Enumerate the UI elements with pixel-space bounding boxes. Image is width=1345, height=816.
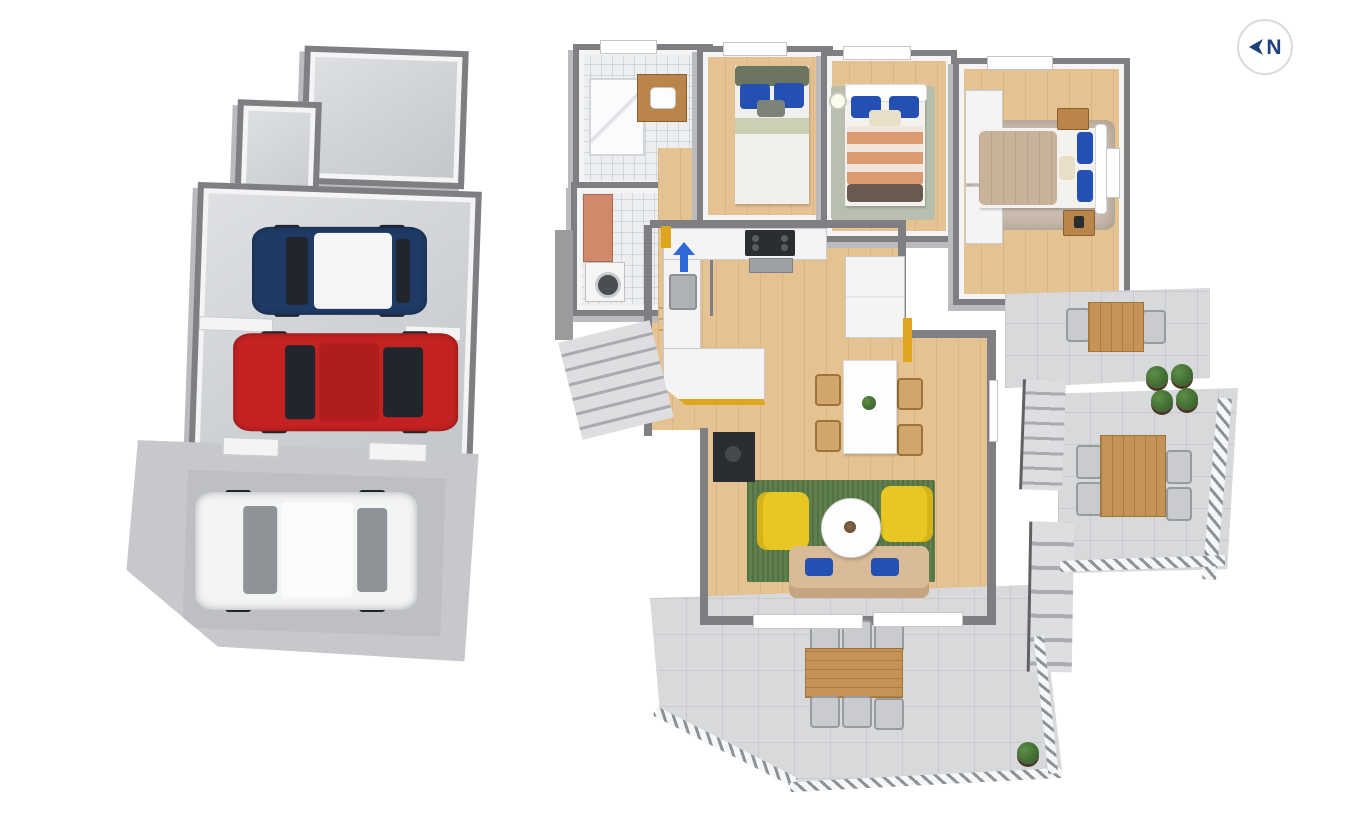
dining-chair: [815, 374, 841, 406]
potted-plant: [1171, 364, 1193, 386]
upper-terrace-table: [1088, 302, 1144, 352]
vehicle-white-sedan: [195, 492, 417, 610]
blanket-band: [735, 118, 809, 134]
master-bedroom: [953, 58, 1130, 305]
burner: [781, 244, 788, 251]
terrace-chair: [1066, 308, 1090, 342]
sofa-pillow-blue: [871, 558, 899, 576]
pillow-gray: [757, 100, 785, 117]
cabinet-accent: [661, 226, 671, 248]
burner: [752, 235, 759, 242]
cabinet-accent: [903, 318, 912, 362]
window: [723, 42, 787, 56]
entry-side-wall: [555, 230, 573, 340]
kitchen-peninsula: [663, 348, 765, 405]
table-plant: [862, 396, 876, 410]
car-roof: [319, 343, 379, 421]
rear-glass: [396, 239, 410, 303]
terrace-stairs-lower: [1027, 522, 1075, 673]
oven: [749, 258, 793, 273]
tall-cabinets: [845, 256, 905, 338]
window: [873, 612, 963, 627]
window: [989, 380, 998, 442]
washing-machine: [585, 262, 625, 302]
floor-lamp: [829, 92, 847, 110]
bedroom-2: [821, 50, 957, 242]
garage-door-pillar-right: [368, 442, 427, 462]
car-roof: [281, 502, 353, 598]
armchair-yellow: [757, 492, 809, 550]
pillow-beige: [869, 110, 901, 127]
laundry-counter: [583, 194, 613, 262]
pillow-blue: [1077, 132, 1093, 164]
bedroom-1: [697, 46, 833, 226]
dining-chair: [815, 420, 841, 452]
storage-room: [300, 46, 469, 190]
terrace-chair: [1076, 445, 1102, 479]
rear-glass: [383, 347, 423, 417]
blanket-tan: [979, 131, 1057, 205]
coffee-table: [821, 498, 881, 558]
foot-bench: [847, 184, 923, 202]
burner: [752, 244, 759, 251]
table-lamp: [1074, 216, 1084, 228]
terrace-chair: [1166, 487, 1192, 521]
potted-plant: [1176, 388, 1198, 410]
pillow-blue: [1077, 170, 1093, 202]
window: [1106, 148, 1120, 198]
kitchen-top-wall: [650, 220, 906, 228]
garage-door-pillar-left: [222, 437, 279, 457]
living-left-wall: [700, 428, 708, 624]
dining-top-wall: [898, 330, 994, 338]
house-floor-plan: [555, 30, 1315, 816]
armchair-yellow: [881, 486, 933, 542]
bed: [735, 66, 809, 204]
terrace-chair: [1142, 310, 1166, 344]
cooktop: [745, 230, 795, 256]
window: [753, 614, 863, 629]
patio-plant: [1017, 742, 1039, 764]
sink: [650, 87, 676, 109]
garage-building: [124, 38, 493, 662]
windshield: [286, 237, 308, 305]
garage-divider-wall-left: [199, 316, 273, 333]
windshield: [243, 506, 277, 594]
entrance-arrow-icon: [673, 242, 695, 272]
stove-pipe: [725, 446, 741, 462]
window: [600, 40, 657, 54]
sofa-pillow-blue: [805, 558, 833, 576]
blanket-salmon: [847, 126, 923, 184]
living-right-wall: [987, 330, 996, 625]
terrace-chair: [1076, 482, 1102, 516]
terrace-stairs-upper: [1019, 379, 1066, 490]
patio-table: [805, 648, 903, 698]
bed: [845, 84, 925, 206]
patio-chair: [810, 696, 840, 728]
dining-chair: [897, 378, 923, 410]
windshield: [285, 345, 315, 419]
potted-plant: [1146, 366, 1168, 388]
wood-stove: [713, 432, 755, 482]
washer-door: [595, 272, 621, 298]
vehicle-red-sedan: [233, 333, 458, 431]
dining-chair: [897, 424, 923, 456]
car-roof: [314, 233, 392, 309]
terrace-chair: [1166, 450, 1192, 484]
patio-chair: [874, 698, 904, 730]
pillow-beige: [1059, 156, 1075, 180]
bathroom-vanity: [637, 74, 687, 122]
nightstand: [1063, 210, 1095, 236]
table-decor: [844, 521, 856, 533]
patio-chair: [842, 696, 872, 728]
floor-plan-canvas: N: [0, 0, 1345, 816]
burner: [781, 235, 788, 242]
master-bed: [979, 128, 1101, 208]
window: [843, 46, 911, 60]
vehicle-blue-hatchback: [252, 227, 427, 315]
window: [987, 56, 1053, 70]
nightstand: [1057, 108, 1089, 130]
lower-terrace-table: [1100, 435, 1166, 517]
potted-plant: [1151, 390, 1173, 412]
rear-glass: [357, 508, 387, 592]
kitchen-sink: [669, 274, 697, 310]
